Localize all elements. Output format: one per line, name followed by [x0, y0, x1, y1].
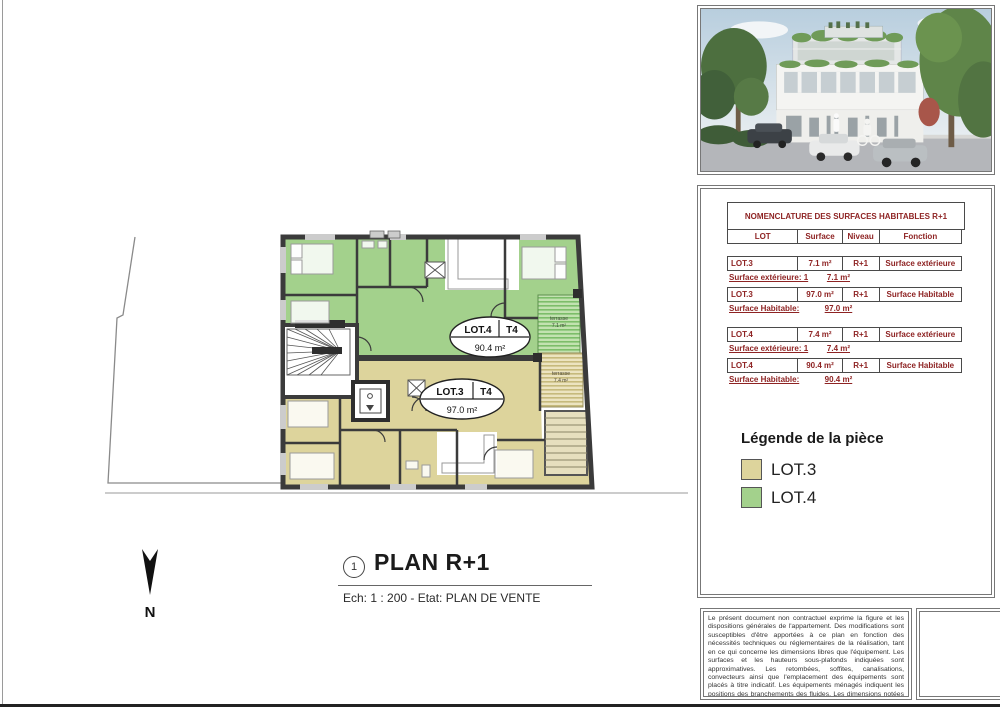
- table-row: LOT.4 7.4 m² R+1 Surface extérieure: [727, 327, 965, 342]
- subrow-label: Surface extérieure: 1: [727, 273, 817, 282]
- building-rendering: [701, 9, 991, 171]
- subrow-label: Surface Habitable:: [727, 304, 817, 313]
- plan-scale-state: Ech: 1 : 200 - Etat: PLAN DE VENTE: [343, 591, 540, 605]
- svg-text:terrasse: terrasse: [550, 316, 568, 322]
- table-row: LOT.4 90.4 m² R+1 Surface Habitable: [727, 358, 965, 373]
- cell-niveau: R+1: [842, 287, 880, 302]
- legend-label: LOT.4: [771, 488, 816, 508]
- table-subrow: Surface Habitable: 90.4 m²: [727, 375, 965, 384]
- north-arrow: N: [133, 545, 173, 625]
- floor-plan-drawing: LOT.4 T4 90.4 m² LOT.3 T4 97.0 m² terras…: [90, 225, 690, 505]
- subrow-value: 90.4 m²: [817, 375, 860, 384]
- nomenclature-panel: NOMENCLATURE DES SURFACES HABITABLES R+1…: [697, 185, 995, 598]
- cell-lot: LOT.3: [727, 256, 798, 271]
- cell-fonction: Surface extérieure: [879, 256, 962, 271]
- title-underline: [338, 585, 592, 586]
- subrow-value: 7.1 m²: [817, 273, 860, 282]
- header-niveau: Niveau: [842, 229, 880, 244]
- pillar-2: [573, 289, 582, 298]
- table-group-lot4: LOT.4 7.4 m² R+1 Surface extérieure Surf…: [727, 327, 965, 384]
- legend-title: Légende de la pièce: [741, 430, 991, 447]
- lot4-badge-type: T4: [506, 325, 518, 336]
- lot4-badge-lot: LOT.4: [464, 325, 492, 336]
- north-arrow-icon: [142, 549, 158, 595]
- disclaimer-text: Le présent document non contractuel expr…: [704, 612, 908, 697]
- elevator: [353, 382, 388, 420]
- building: [776, 21, 923, 142]
- north-label: N: [145, 604, 156, 621]
- cell-fonction: Surface Habitable: [879, 287, 962, 302]
- cell-niveau: R+1: [842, 256, 880, 271]
- subrow-label: Surface Habitable:: [727, 375, 817, 384]
- table-title: NOMENCLATURE DES SURFACES HABITABLES R+1: [727, 202, 965, 230]
- surfaces-table: NOMENCLATURE DES SURFACES HABITABLES R+1…: [727, 202, 965, 384]
- plan-title: PLAN R+1: [374, 549, 490, 576]
- table-subrow: Surface extérieure: 1 7.4 m²: [727, 344, 965, 353]
- plan-de-vente-sheet: { "plan": { "number": "1", "title": "PLA…: [0, 0, 1000, 707]
- cell-lot: LOT.4: [727, 358, 798, 373]
- cell-niveau: R+1: [842, 358, 880, 373]
- table-row: LOT.3 7.1 m² R+1 Surface extérieure: [727, 256, 965, 271]
- lot4-color-swatch: [741, 487, 762, 508]
- svg-text:7.4 m²: 7.4 m²: [554, 378, 569, 384]
- stair-core: [283, 320, 357, 397]
- cell-surface: 97.0 m²: [797, 287, 842, 302]
- table-row: LOT.3 97.0 m² R+1 Surface Habitable: [727, 287, 965, 302]
- site-boundary: [108, 237, 283, 483]
- legend-item-lot4: LOT.4: [741, 487, 991, 508]
- lot3-badge-type: T4: [480, 387, 492, 398]
- cell-surface: 7.1 m²: [797, 256, 842, 271]
- lot3-badge-area: 97.0 m²: [447, 405, 478, 415]
- lot3-badge: LOT.3 T4 97.0 m²: [420, 379, 504, 419]
- pedestrian: [833, 113, 839, 132]
- table-group-lot3: LOT.3 7.1 m² R+1 Surface extérieure Surf…: [727, 256, 965, 313]
- svg-text:terrasse: terrasse: [552, 371, 570, 377]
- subrow-value: 7.4 m²: [817, 344, 860, 353]
- lot4-badge: LOT.4 T4 90.4 m²: [450, 317, 530, 357]
- room-legend: Légende de la pièce LOT.3 LOT.4: [741, 430, 991, 508]
- lot3-color-swatch: [741, 459, 762, 480]
- empty-cartouche-box: [916, 608, 1000, 700]
- header-lot: LOT: [727, 229, 798, 244]
- building-rendering-frame: [697, 5, 995, 175]
- cell-lot: LOT.3: [727, 287, 798, 302]
- header-fonction: Fonction: [879, 229, 962, 244]
- cell-lot: LOT.4: [727, 327, 798, 342]
- subrow-label: Surface extérieure: 1: [727, 344, 817, 353]
- legend-label: LOT.3: [771, 460, 816, 480]
- cell-surface: 7.4 m²: [797, 327, 842, 342]
- pillar-1: [533, 353, 542, 362]
- legend-item-lot3: LOT.3: [741, 459, 991, 480]
- sheet-left-edge: [2, 0, 3, 707]
- cell-niveau: R+1: [842, 327, 880, 342]
- lot3-badge-lot: LOT.3: [436, 387, 464, 398]
- exterior-stair: [545, 411, 587, 475]
- header-surface: Surface: [797, 229, 842, 244]
- table-subrow: Surface Habitable: 97.0 m²: [727, 304, 965, 313]
- party-wall: [357, 355, 540, 361]
- red-shrub: [919, 98, 940, 127]
- cell-fonction: Surface extérieure: [879, 327, 962, 342]
- subrow-value: 97.0 m²: [817, 304, 860, 313]
- plan-number-circle: 1: [343, 556, 365, 578]
- title-block: 1 PLAN R+1 Ech: 1 : 200 - Etat: PLAN DE …: [336, 548, 606, 610]
- cell-fonction: Surface Habitable: [879, 358, 962, 373]
- cell-surface: 90.4 m²: [797, 358, 842, 373]
- lot4-badge-area: 90.4 m²: [475, 343, 506, 353]
- table-subrow: Surface extérieure: 1 7.1 m²: [727, 273, 965, 282]
- table-header-row: LOT Surface Niveau Fonction: [727, 229, 965, 244]
- svg-text:7.1 m²: 7.1 m²: [552, 323, 567, 329]
- disclaimer-box: Le présent document non contractuel expr…: [700, 608, 912, 700]
